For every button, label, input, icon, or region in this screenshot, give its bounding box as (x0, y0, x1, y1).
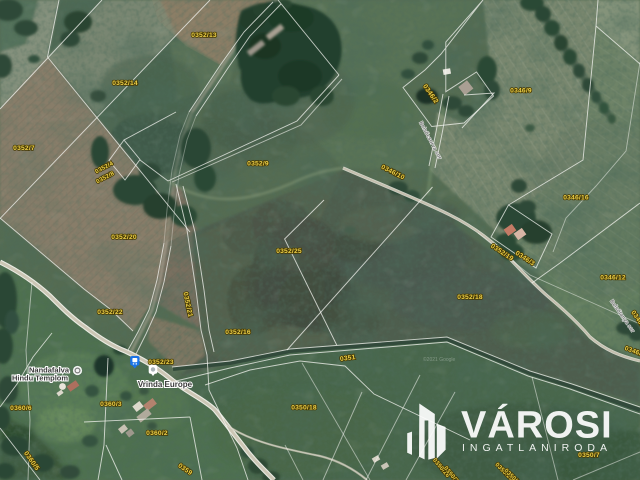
svg-text:0350/18: 0350/18 (291, 405, 317, 412)
svg-text:VÁROSI: VÁROSI (461, 403, 613, 447)
svg-text:0352/25: 0352/25 (276, 248, 302, 255)
svg-text:0352/14: 0352/14 (112, 80, 138, 87)
svg-text:0360/6: 0360/6 (10, 405, 32, 412)
svg-text:Hindu Templom: Hindu Templom (12, 374, 68, 383)
svg-text:0346/16: 0346/16 (563, 195, 589, 202)
svg-text:0352/9: 0352/9 (247, 161, 269, 168)
svg-text:0352/13: 0352/13 (191, 32, 217, 39)
svg-text:0352/20: 0352/20 (111, 234, 137, 241)
svg-text:0360/2: 0360/2 (146, 430, 168, 437)
svg-text:0352/7: 0352/7 (13, 145, 35, 152)
svg-text:0346/9: 0346/9 (510, 88, 532, 95)
svg-text:©2021 Google: ©2021 Google (423, 356, 456, 363)
svg-text:0352/16: 0352/16 (225, 329, 251, 336)
svg-text:Vrinda Europe: Vrinda Europe (138, 380, 193, 389)
svg-text:0352/23: 0352/23 (148, 359, 174, 366)
svg-text:INGATLANIRODA: INGATLANIRODA (462, 442, 612, 454)
svg-text:0352/18: 0352/18 (457, 294, 483, 301)
svg-text:0352/22: 0352/22 (97, 309, 123, 316)
svg-text:0360/3: 0360/3 (100, 401, 122, 408)
svg-text:0346/12: 0346/12 (600, 275, 626, 282)
